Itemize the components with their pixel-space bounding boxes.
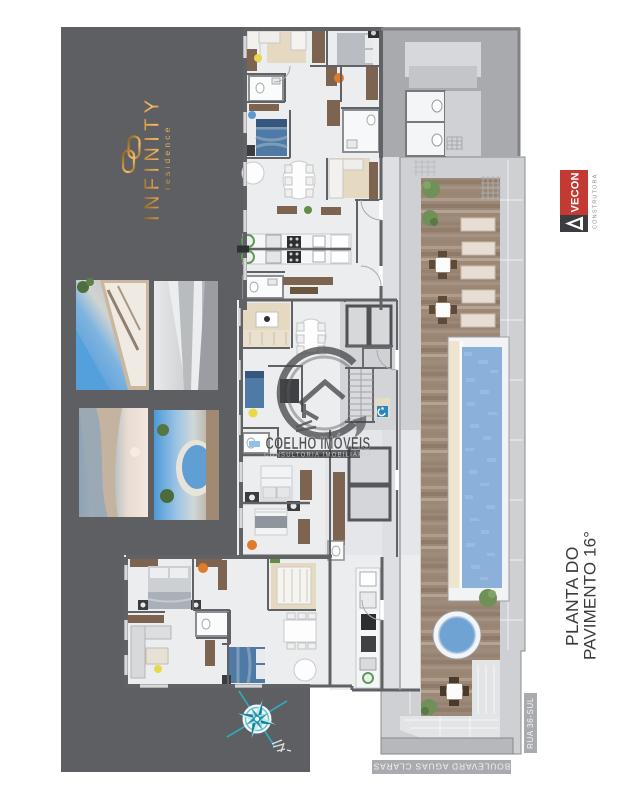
svg-text:PAVIMENTO 16°: PAVIMENTO 16° [581, 531, 600, 660]
svg-text:BOULEVARD AGUAS CLARAS: BOULEVARD AGUAS CLARAS [373, 762, 510, 772]
svg-text:CONSULTORIA IMOBILIÁRIA: CONSULTORIA IMOBILIÁRIA [264, 452, 372, 459]
svg-text:PLANTA DO: PLANTA DO [562, 546, 582, 646]
svg-text:VECON: VECON [570, 172, 582, 212]
svg-text:residence: residence [162, 124, 172, 190]
svg-text:RUA 36-SUL: RUA 36-SUL [526, 697, 535, 749]
svg-text:INFINITY: INFINITY [142, 94, 164, 221]
svg-text:CONSTRUTORA: CONSTRUTORA [593, 173, 599, 229]
